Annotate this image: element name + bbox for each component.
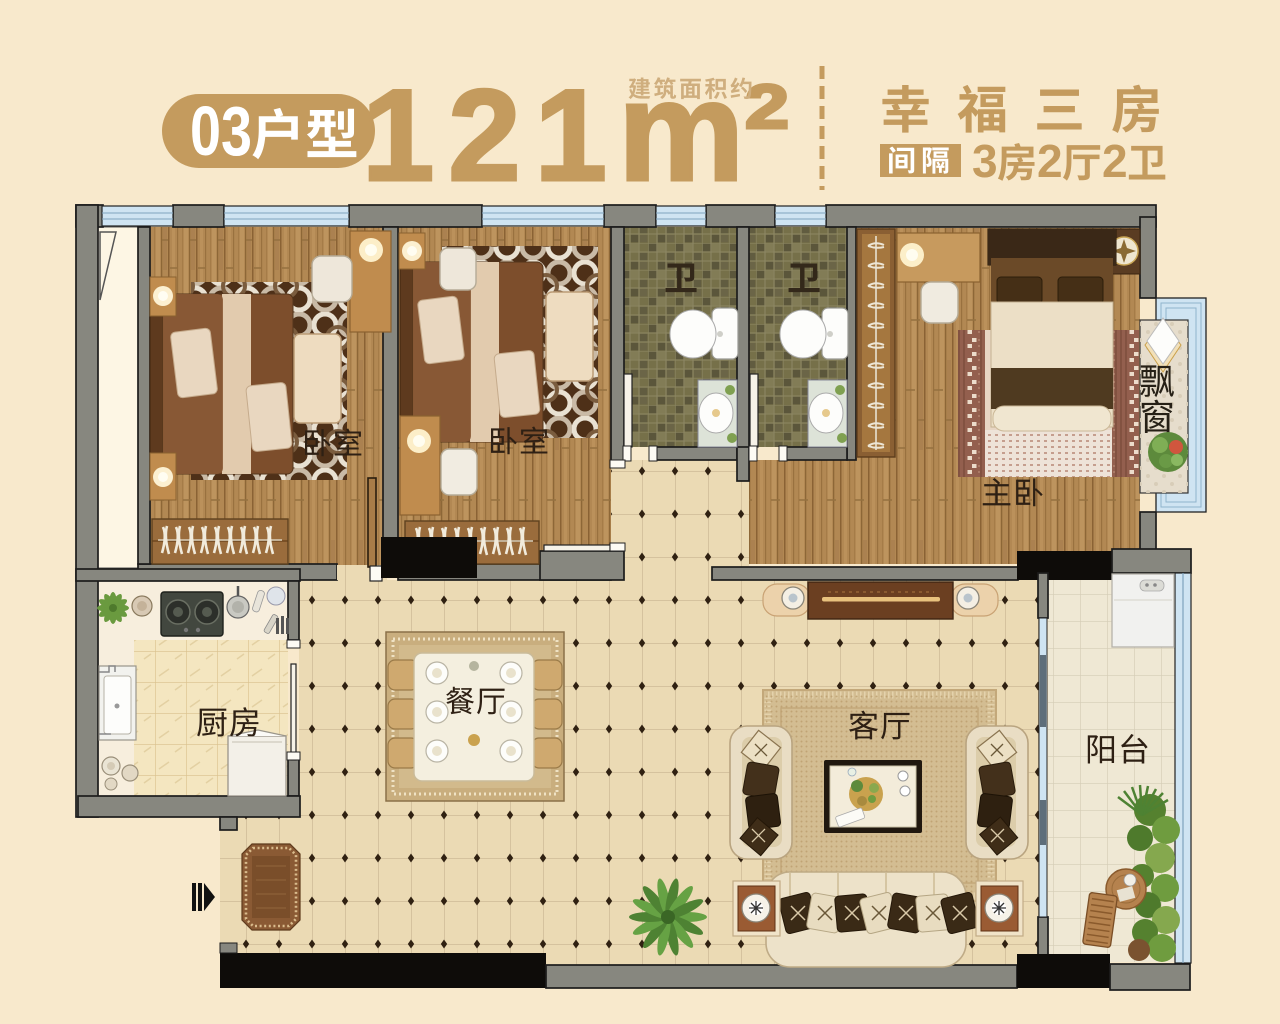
svg-text:2: 2 bbox=[1037, 135, 1063, 187]
svg-text:2: 2 bbox=[745, 73, 789, 142]
svg-text:3: 3 bbox=[972, 135, 998, 187]
svg-text:121: 121 bbox=[362, 62, 621, 208]
svg-text:03: 03 bbox=[190, 92, 252, 170]
svg-text:m: m bbox=[618, 52, 744, 211]
svg-text:2: 2 bbox=[1102, 135, 1128, 187]
